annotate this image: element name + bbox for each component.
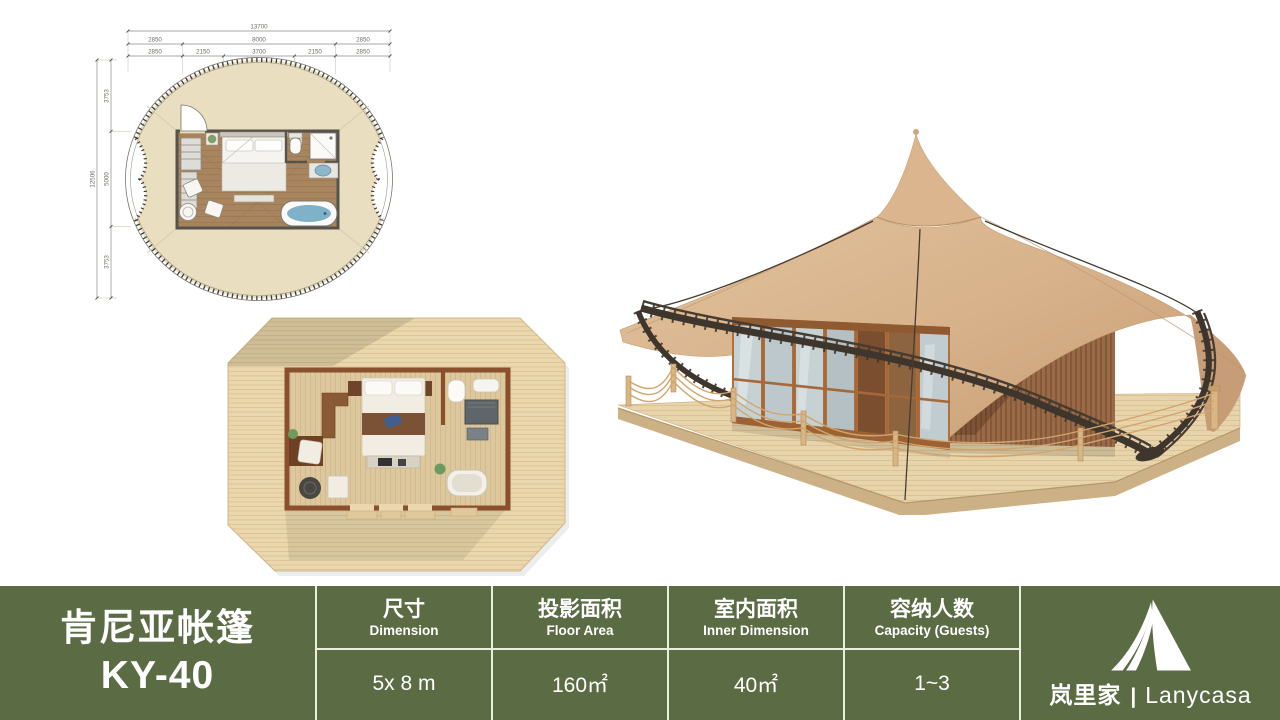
- spec-label-cn: 室内面积: [714, 597, 798, 622]
- plant: [435, 464, 446, 475]
- spec-value: 40㎡: [669, 650, 843, 718]
- dim-total-height: 12506: [90, 170, 97, 188]
- spec-label-en: Floor Area: [546, 622, 613, 639]
- spec-cell-dimension: 尺寸 Dimension 5x 8 m: [315, 586, 491, 720]
- spec-label-cn: 尺寸: [383, 597, 425, 622]
- brand-name: 岚里家 | Lanycasa: [1049, 676, 1251, 710]
- spec-bar: 肯尼亚帐篷 KY-40 尺寸 Dimension 5x 8 m 投影面积 Flo…: [0, 586, 1280, 720]
- spec-header: 投影面积 Floor Area: [493, 586, 667, 650]
- spec-value: 1~3: [845, 650, 1019, 718]
- spec-cell-capacity: 容纳人数 Capacity (Guests) 1~3: [843, 586, 1019, 720]
- spec-label-en: Capacity (Guests): [875, 622, 990, 639]
- towel-roll: [473, 379, 499, 392]
- spec-value: 160㎡: [493, 650, 667, 718]
- svg-text:5000: 5000: [104, 172, 111, 186]
- spec-label-cn: 容纳人数: [890, 597, 974, 622]
- svg-text:2850: 2850: [356, 49, 370, 56]
- dim-total-width: 13700: [250, 24, 268, 31]
- spec-value: 5x 8 m: [317, 650, 491, 718]
- spec-header: 容纳人数 Capacity (Guests): [845, 586, 1019, 650]
- floor-plan-drawing: 13700 2850 8000 2850 2850 2150 3700 2150…: [85, 12, 415, 307]
- brand-name-cn: 岚里家: [1049, 676, 1121, 710]
- spec-label-en: Dimension: [369, 622, 438, 639]
- svg-text:3700: 3700: [252, 49, 266, 56]
- spec-label-en: Inner Dimension: [703, 622, 809, 639]
- top-view-rendering: [215, 308, 575, 583]
- washbasin: [315, 165, 331, 176]
- svg-text:2150: 2150: [308, 49, 322, 56]
- spec-cell-floor-area: 投影面积 Floor Area 160㎡: [491, 586, 667, 720]
- toilet: [290, 138, 301, 154]
- side-table: [180, 204, 197, 221]
- brand-logo: 岚里家 | Lanycasa: [1019, 586, 1280, 720]
- svg-text:2850: 2850: [148, 49, 162, 56]
- spec-cell-inner-dimension: 室内面积 Inner Dimension 40㎡: [667, 586, 843, 720]
- spec-header: 室内面积 Inner Dimension: [669, 586, 843, 650]
- lounge-chair: [298, 440, 323, 465]
- svg-text:2850: 2850: [148, 37, 162, 44]
- stove: [299, 477, 321, 499]
- spec-header: 尺寸 Dimension: [317, 586, 491, 650]
- svg-text:2850: 2850: [356, 37, 370, 44]
- slide: 13700 2850 8000 2850 2850 2150 3700 2150…: [0, 0, 1280, 720]
- bed-bench: [234, 195, 274, 202]
- product-title-block: 肯尼亚帐篷 KY-40: [0, 586, 315, 720]
- room-top-view: [287, 370, 508, 519]
- brand-separator: |: [1130, 685, 1136, 709]
- tv-bench: [367, 456, 420, 468]
- svg-text:3753: 3753: [104, 255, 111, 269]
- product-name: 肯尼亚帐篷: [60, 605, 255, 651]
- spec-label-cn: 投影面积: [538, 597, 622, 622]
- svg-text:8000: 8000: [252, 37, 266, 44]
- svg-text:3753: 3753: [104, 89, 111, 103]
- shower-box: [465, 400, 498, 424]
- tent-icon: [1105, 596, 1197, 674]
- bathtub: [281, 201, 337, 226]
- brand-name-en: Lanycasa: [1145, 682, 1251, 709]
- product-model: KY-40: [101, 651, 214, 701]
- svg-text:2150: 2150: [196, 49, 210, 56]
- canopy-peak-cone: [877, 134, 981, 226]
- tent-exterior-rendering: [605, 105, 1255, 515]
- toilet: [448, 380, 465, 402]
- tray-table: [328, 476, 348, 498]
- bed-top-view: [362, 378, 425, 468]
